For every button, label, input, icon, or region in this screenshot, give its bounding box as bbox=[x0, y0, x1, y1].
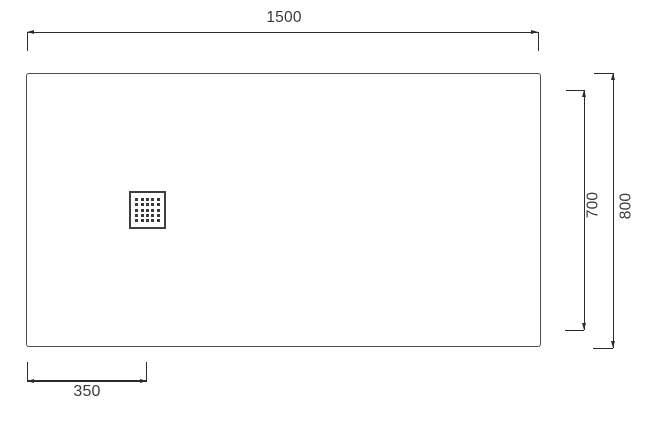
drain-hole bbox=[157, 209, 160, 212]
dim-height-label: 800 bbox=[618, 192, 634, 218]
drain-hole bbox=[141, 209, 144, 212]
dim-width-line bbox=[27, 32, 538, 33]
drain-hole bbox=[151, 209, 154, 212]
dim-width-extension-left bbox=[27, 32, 28, 51]
drain-hole bbox=[146, 209, 149, 212]
dim-width-extension-right bbox=[538, 32, 539, 51]
drain-hole bbox=[151, 198, 154, 201]
drain-hole bbox=[151, 203, 154, 206]
drain-hole bbox=[135, 219, 138, 222]
drain-hole bbox=[157, 203, 160, 206]
dim-height-arrow-down-icon bbox=[611, 341, 615, 348]
dim-height-line bbox=[613, 73, 614, 348]
dim-drain-offset-line bbox=[27, 380, 147, 381]
dim-width-label: 1500 bbox=[266, 10, 301, 26]
drain-hole bbox=[141, 219, 144, 222]
drain-hole bbox=[157, 198, 160, 201]
dim-drain-offset-label: 350 bbox=[73, 384, 100, 400]
dim-inner-height-label: 700 bbox=[585, 192, 601, 218]
drain-hole bbox=[151, 214, 154, 217]
drain-hole bbox=[141, 198, 144, 201]
drain-hole bbox=[146, 198, 149, 201]
drain-hole bbox=[135, 203, 138, 206]
tray-outline bbox=[26, 73, 541, 347]
drain-hole bbox=[141, 214, 144, 217]
drain-hole bbox=[135, 214, 138, 217]
dim-height-arrow-up-icon bbox=[611, 73, 615, 80]
drain-hole bbox=[146, 214, 149, 217]
drain-hole bbox=[141, 203, 144, 206]
drain-hole bbox=[157, 214, 160, 217]
dim-inner-height-arrow-up-icon bbox=[582, 90, 586, 97]
drain-hole bbox=[151, 219, 154, 222]
drain-hole bbox=[135, 198, 138, 201]
drain-hole bbox=[146, 219, 149, 222]
drain-cover bbox=[129, 191, 166, 229]
drain-hole bbox=[135, 209, 138, 212]
technical-drawing-canvas: 1500 350 700 800 bbox=[0, 0, 655, 424]
drain-hole bbox=[157, 219, 160, 222]
dim-drain-offset-arrow-right-icon bbox=[140, 379, 147, 383]
dim-inner-height-arrow-down-icon bbox=[582, 323, 586, 330]
drain-hole bbox=[146, 203, 149, 206]
dim-drain-offset-arrow-left-icon bbox=[27, 379, 34, 383]
dim-width-arrow-left-icon bbox=[27, 30, 34, 34]
